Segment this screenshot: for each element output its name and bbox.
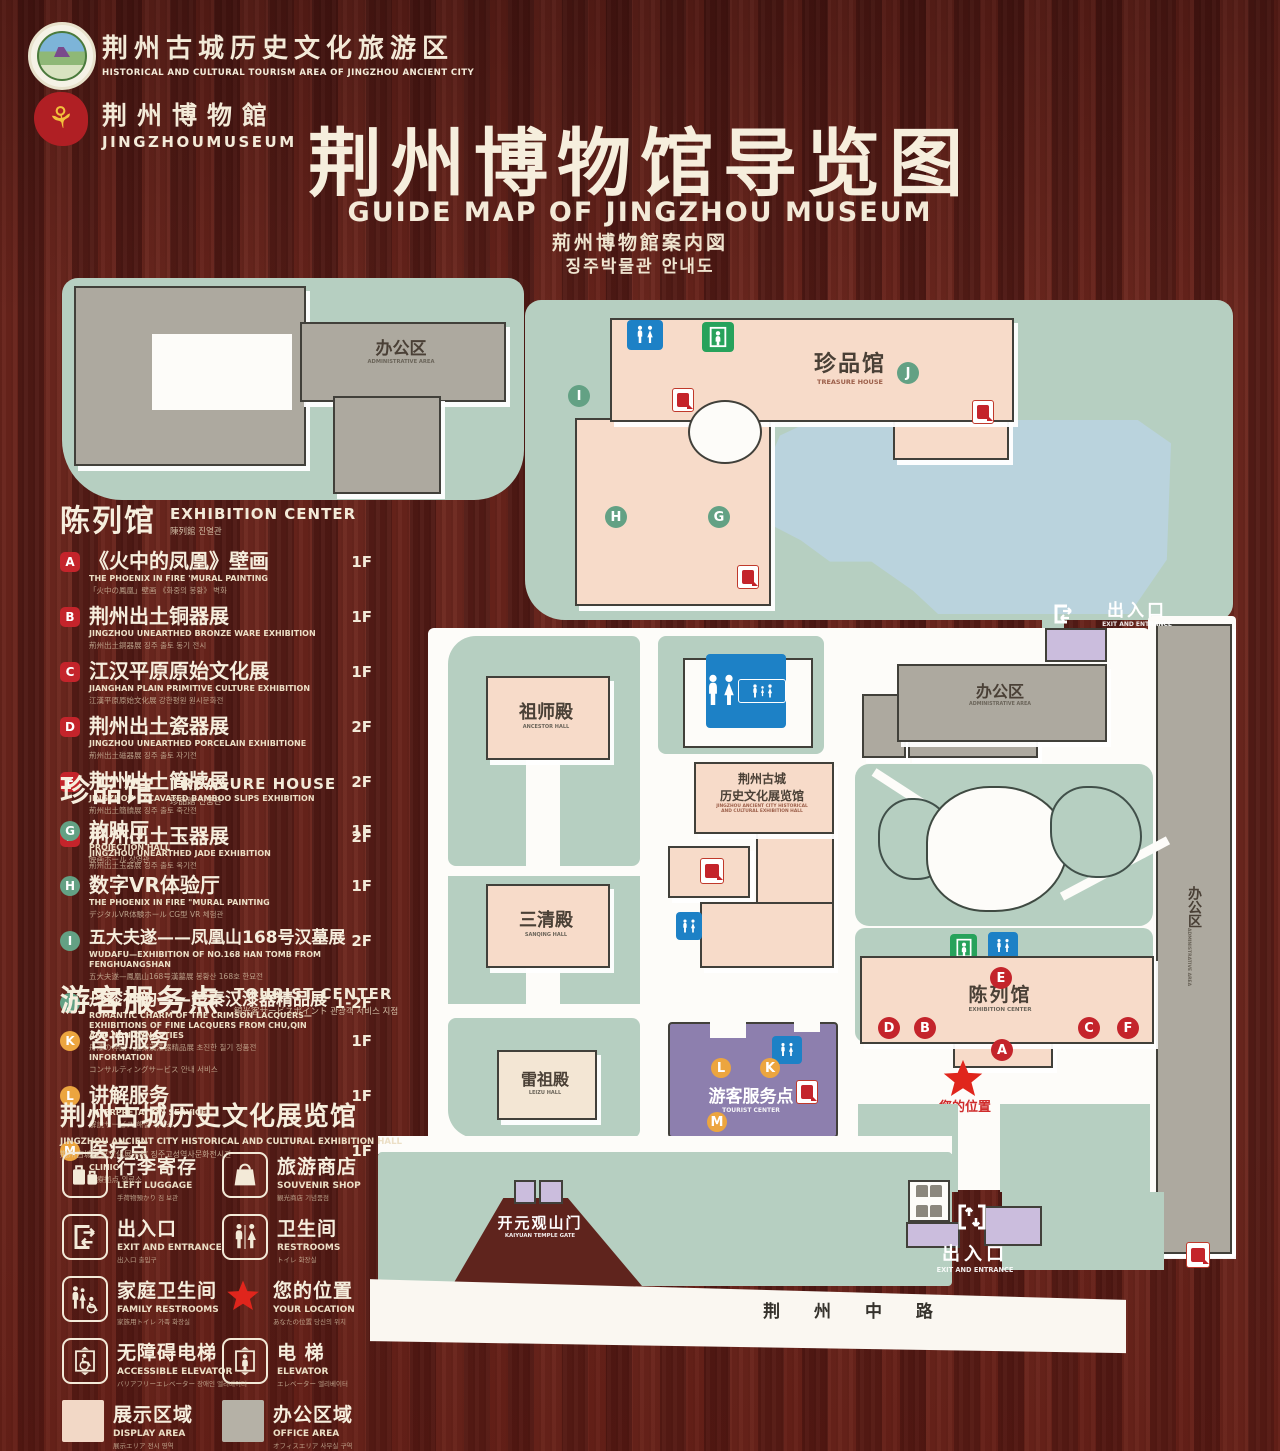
list-item-exhibit-d: D 荆州出土瓷器展 JINGZHOU UNEARTHED PORCELAIN E… xyxy=(60,715,372,761)
map-marker-i: I xyxy=(568,385,590,407)
escalator-icon xyxy=(796,1080,818,1104)
office-area-swatch xyxy=(222,1400,264,1442)
zone-south-lawn-east xyxy=(1000,1104,1150,1192)
restroom-family-icon xyxy=(706,654,786,728)
zone-garden xyxy=(855,764,1153,926)
escalator-icon xyxy=(700,858,724,884)
museum-logo-text: 荆州博物館 JINGZHOUMUSEUM xyxy=(102,96,297,151)
path-notch xyxy=(794,1020,820,1032)
badge-a: A xyxy=(60,552,80,572)
list-item-exhibit-a: A 《火中的凤凰》壁画 THE PHOENIX IN FIRE 'MURAL P… xyxy=(60,550,372,596)
page-title-ja: 荊州博物館案内図 xyxy=(552,228,728,255)
list-item-exhibit-b: B 荆州出土铜器展 JINGZHOU UNEARTHED BRONZE WARE… xyxy=(60,605,372,651)
badge-k: K xyxy=(60,1031,80,1051)
floor-label: 1F xyxy=(351,822,372,840)
floor-label: 2F xyxy=(351,718,372,736)
list-item-exhibit-h: H 数字VR体验厅 THE PHOENIX IN FIRE "MURAL PAI… xyxy=(60,874,372,920)
path-notch xyxy=(710,1020,746,1038)
floor-label: 1F xyxy=(351,1032,372,1050)
map-marker-k: K xyxy=(760,1058,780,1078)
escalator-icon xyxy=(737,565,759,589)
floor-label: 1F xyxy=(351,663,372,681)
souvenir-shop-icon xyxy=(222,1152,268,1198)
tourism-area-logo-icon xyxy=(28,22,96,90)
page-title: 荆州博物馆导览图 xyxy=(308,104,972,211)
badge-d: D xyxy=(60,717,80,737)
legend-office-area: 办公区域OFFICE AREAオフィスエリア 사무실 구역 xyxy=(222,1400,398,1450)
family-restrooms-icon xyxy=(62,1276,108,1322)
kaiyuan-gate-label: 开元观山门 KAIYUAN TEMPLE GATE xyxy=(460,1212,620,1239)
badge-h: H xyxy=(60,876,80,896)
tourism-area-logo-text: 荆州古城历史文化旅游区 HISTORICAL AND CULTURAL TOUR… xyxy=(102,28,474,78)
elevator-icon xyxy=(702,322,734,352)
path-courtyard-nw xyxy=(152,334,292,410)
floor-label: 1F xyxy=(351,553,372,571)
tourism-area-name-en: HISTORICAL AND CULTURAL TOURISM AREA OF … xyxy=(102,68,474,78)
list-item-exhibit-g: G 放映厅 PROJECTION HALL 映画ホール 상영관 1F xyxy=(60,819,372,865)
exit-icon xyxy=(1051,603,1075,625)
legend-your-location: 您的位置YOUR LOCATIONあなたの位置 당신의 위치 xyxy=(222,1276,398,1326)
path-curve-notch xyxy=(688,400,762,464)
map-marker-j: J xyxy=(897,362,919,384)
building-admin-northwest-lower xyxy=(333,396,441,494)
badge-c: C xyxy=(60,662,80,682)
list-item-service-k: K 咨询服务 INFORMATION コンサルティングサービス 안내 서비스 1… xyxy=(60,1029,372,1075)
map-marker-b: B xyxy=(914,1017,936,1039)
path-vertical xyxy=(526,756,560,878)
road-label: 荆 州 中 路 xyxy=(763,1297,947,1322)
map-marker-c: C xyxy=(1078,1017,1100,1039)
map-marker-e: E xyxy=(990,967,1012,989)
legend-family-restrooms: 家庭卫生间FAMILY RESTROOMS家族用トイレ 가족 화장실 xyxy=(62,1276,222,1326)
map-marker-d: D xyxy=(878,1017,900,1039)
floor-label: 2F xyxy=(351,932,372,950)
admin-strip-label: 办公区 xyxy=(1184,886,1204,928)
restroom-icon xyxy=(627,320,663,350)
exhibition-hall-label: 荆州古城 历史文化展览馆 JINGZHOU ANCIENT CITY HISTO… xyxy=(694,770,830,814)
museum-logo-icon: ⚘ xyxy=(34,92,88,146)
leizu-hall-label: 雷祖殿 LEIZU HALL xyxy=(497,1066,593,1096)
your-location-star-icon xyxy=(222,1276,264,1318)
garden-lobe xyxy=(1050,786,1142,878)
map-marker-g: G xyxy=(708,506,730,528)
floor-label: 1F xyxy=(351,877,372,895)
map-marker-h: H xyxy=(605,506,627,528)
security-check-icon xyxy=(908,1180,950,1222)
museum-guide-map-poster: { "header": { "logo1": {"zh": "荆州古城历史文化旅… xyxy=(0,0,1280,1451)
legend-souvenir-shop: 旅游商店SOUVENIR SHOP観光商店 기념품점 xyxy=(222,1152,398,1202)
garden-pond xyxy=(926,786,1068,912)
ancestor-hall-label: 祖师殿 ANCESTOR HALL xyxy=(486,698,606,730)
map-marker-m: M xyxy=(707,1112,727,1132)
path-vertical xyxy=(526,964,560,1022)
display-area-swatch xyxy=(62,1400,104,1442)
legend-left-luggage: 行李寄存LEFT LUGGAGE手荷物預かり 짐 보관 xyxy=(62,1152,222,1202)
admin-east-label: 办公区 ADMINISTRATIVE AREA xyxy=(930,678,1070,707)
restroom-icon xyxy=(676,912,702,940)
tourism-area-name-zh: 荆州古城历史文化旅游区 xyxy=(102,28,474,65)
legend-exit-entrance: 出入口EXIT AND ENTRANCE出入口 출입구 xyxy=(62,1214,222,1264)
tourism-area-logo xyxy=(28,22,96,90)
map-marker-f: F xyxy=(1117,1017,1139,1039)
page-title-ko: 징주박물관 안내도 xyxy=(565,252,714,277)
exit-east-label: 出入口 EXIT AND ENTRANCE xyxy=(1082,596,1192,628)
escalator-icon xyxy=(672,388,694,412)
exit-south-label: 出入口 EXIT AND ENTRANCE xyxy=(910,1240,1040,1274)
museum-name-en: JINGZHOUMUSEUM xyxy=(102,133,297,151)
building-gatehouse-east xyxy=(1045,628,1107,662)
hall-note: 荆州古城历史文化展览馆 JINGZHOU ANCIENT CITY HISTOR… xyxy=(60,1096,420,1160)
exit-icon xyxy=(956,1202,988,1232)
museum-name-zh: 荆州博物館 xyxy=(102,96,297,132)
escalator-icon xyxy=(972,400,994,424)
sanqing-hall-label: 三清殿 SANQING HALL xyxy=(486,906,606,938)
map-marker-l: L xyxy=(711,1058,731,1078)
restrooms-icon xyxy=(222,1214,268,1260)
section-header: 珍品馆 TREASURE HOUSE 珍品館 진품관 xyxy=(60,766,400,810)
building-exhibition-hall-south xyxy=(700,902,834,968)
museum-logo: ⚘ xyxy=(34,92,88,146)
list-item-exhibit-c: C 江汉平原原始文化展 JIANGHAN PLAIN PRIMITIVE CUL… xyxy=(60,660,372,706)
gatehouse-south xyxy=(539,1180,563,1204)
list-item-exhibit-i: I 五大夫遂——凤凰山168号汉墓展 WUDAFU—EXHIBITION OF … xyxy=(60,929,372,982)
left-luggage-icon xyxy=(62,1152,108,1198)
exit-entrance-icon xyxy=(62,1214,108,1260)
legend-accessible-elevator: 无障碍电梯ACCESSIBLE ELEVATORバリアフリーエレベーター 장애인… xyxy=(62,1338,222,1388)
legend-display-area: 展示区域DISPLAY AREA展示エリア 전시 영역 xyxy=(62,1400,222,1450)
legend-elevator: 电 梯ELEVATORエレベーター 엘리베이터 xyxy=(222,1338,398,1388)
admin-nw-label: 办公区 ADMINISTRATIVE AREA xyxy=(336,334,466,365)
section-header: 陈列馆 EXHIBITION CENTER 陳列館 진열관 xyxy=(60,496,400,540)
accessible-elevator-icon xyxy=(62,1338,108,1384)
floor-label: 1F xyxy=(351,608,372,626)
gatehouse-south xyxy=(514,1180,536,1204)
page-title-en: GUIDE MAP OF JINGZHOU MUSEUM xyxy=(348,197,933,228)
map-marker-a: A xyxy=(991,1039,1013,1061)
legend: 行李寄存LEFT LUGGAGE手荷物預かり 짐 보관 旅游商店SOUVENIR… xyxy=(62,1152,402,1450)
building-admin-east-strip: 办公区 ADMINISTRATIVE AREA xyxy=(1156,624,1232,1254)
badge-g: G xyxy=(60,821,80,841)
escalator-icon xyxy=(1186,1242,1210,1268)
section-header: 游客服务点 TOURIST CENTER 観光客サービスポイント 관광객 서비스… xyxy=(60,976,400,1020)
badge-b: B xyxy=(60,607,80,627)
legend-restrooms: 卫生间RESTROOMSトイレ 화장실 xyxy=(222,1214,398,1264)
badge-i: I xyxy=(60,931,80,951)
